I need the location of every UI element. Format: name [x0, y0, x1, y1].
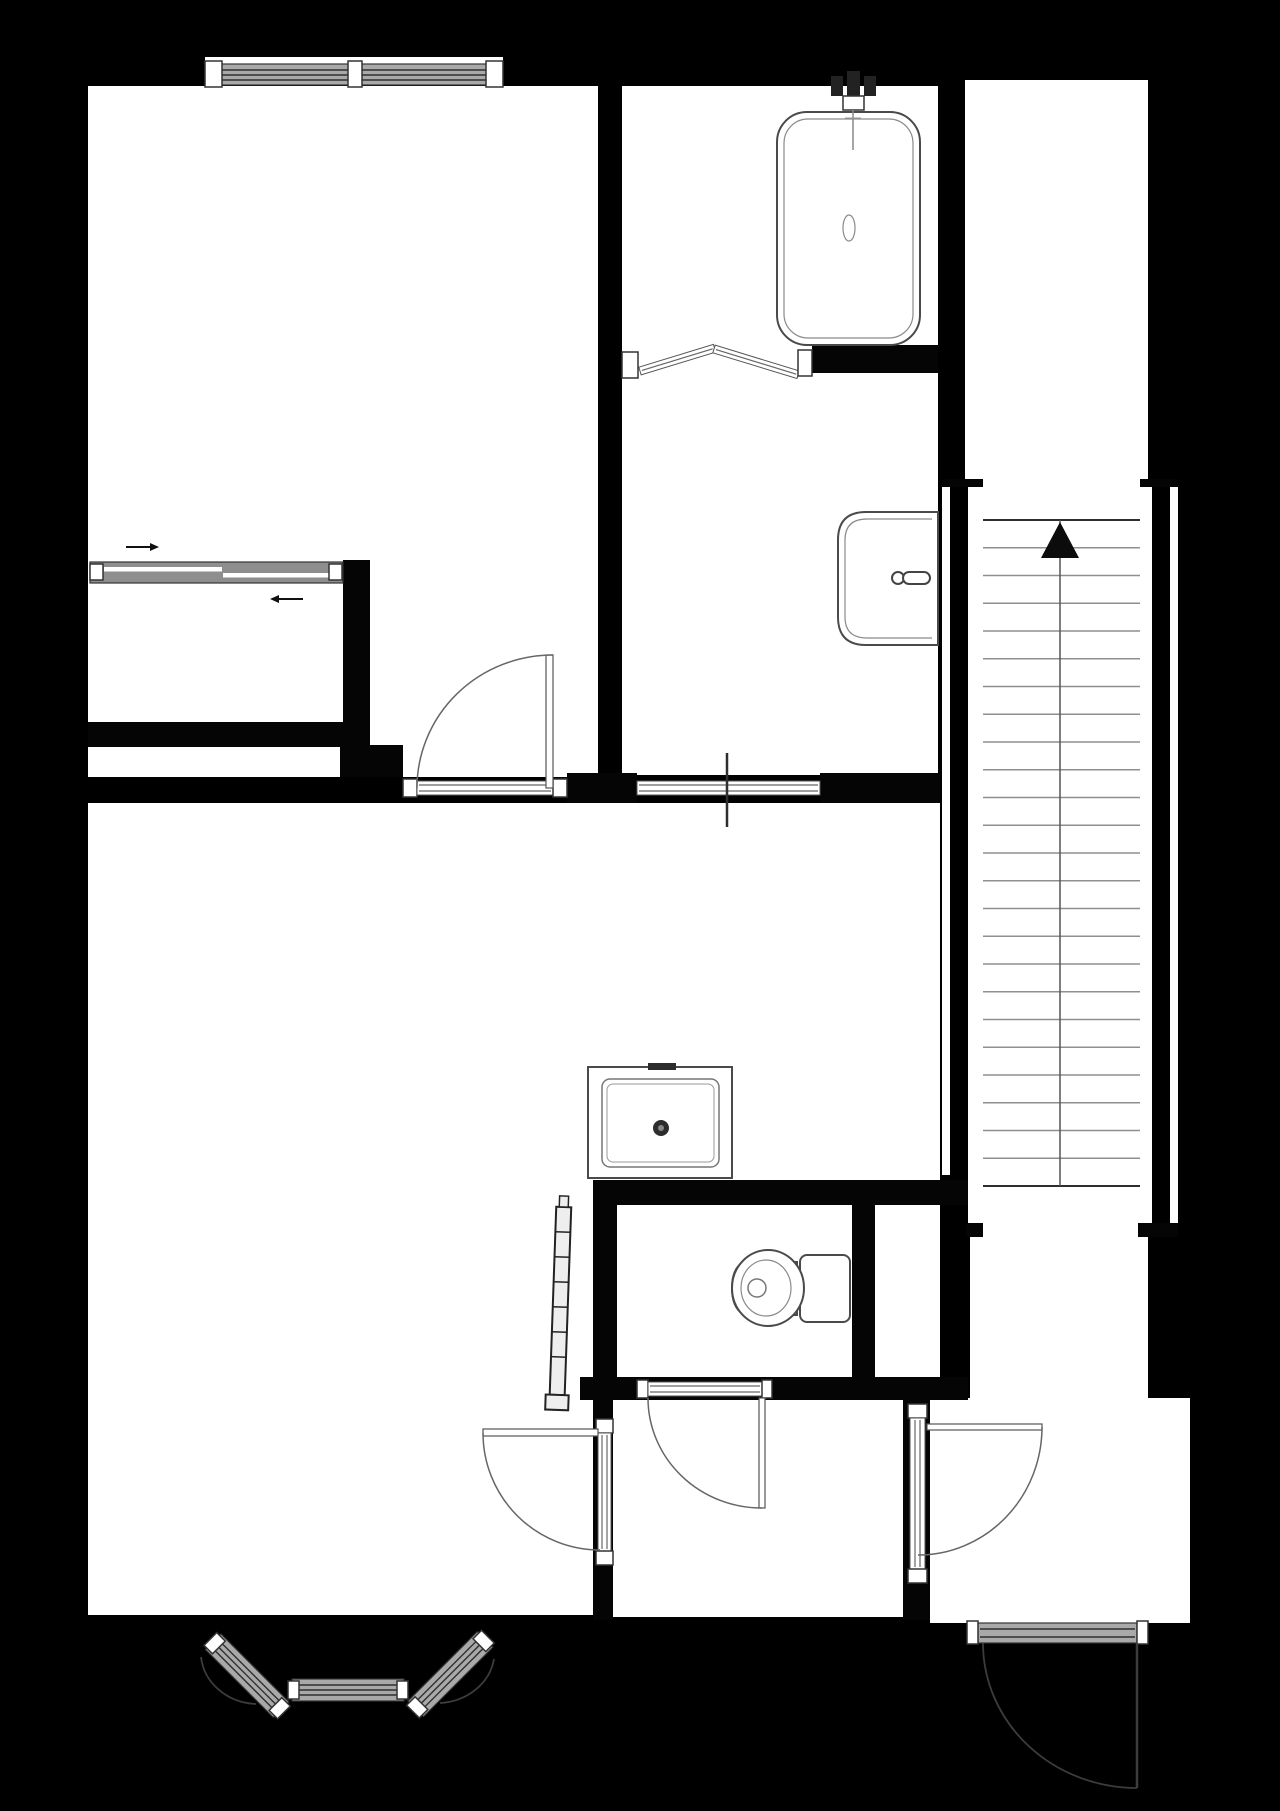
- toilet-room-left-wall: [593, 1205, 617, 1400]
- slider-jamb-right: [329, 564, 342, 580]
- toilet-room-right-wall: [852, 1205, 875, 1377]
- window-jamb-right: [1137, 1621, 1148, 1644]
- shower-tray: [588, 1063, 732, 1178]
- door-leaf: [546, 655, 553, 788]
- door-leaf: [927, 1424, 1042, 1430]
- slider-track: [90, 562, 343, 583]
- window-jamb-right: [486, 61, 503, 87]
- stair-landing-floor: [970, 1187, 1148, 1403]
- door-leaf: [483, 1429, 598, 1436]
- window-band: [978, 1623, 1137, 1643]
- floorplan-canvas: [0, 0, 1280, 1811]
- bath-bottom-wall-left: [567, 773, 637, 803]
- stair-rail-cap-bottom-left: [966, 1223, 983, 1237]
- door-leaf: [759, 1398, 765, 1508]
- stair-hall-floor: [965, 80, 1148, 485]
- stair-rail-inner-right: [1140, 485, 1152, 1237]
- stair-rail-outer-left: [942, 485, 950, 1175]
- bifold-jamb-left: [622, 352, 638, 378]
- toilet-cistern: [800, 1255, 850, 1322]
- stair-rail-inner-left: [968, 485, 983, 1235]
- floorplan-drawing: [0, 0, 1280, 1811]
- bifold-jamb-right: [798, 350, 812, 376]
- bedroom-window: [205, 57, 503, 87]
- bay-pane-center: [288, 1679, 408, 1701]
- window-jamb-left: [967, 1621, 978, 1644]
- slider-leaf-1: [104, 567, 222, 572]
- window-jamb-left: [205, 61, 222, 87]
- window-mullion: [348, 61, 362, 87]
- closet-wall-foot: [340, 745, 403, 777]
- wall-below-bathtub: [812, 345, 938, 373]
- entry-room-floor: [930, 1398, 1190, 1623]
- stair-treads-area: [983, 485, 1140, 1188]
- stair-rail-cap-bottom-right: [1138, 1223, 1178, 1237]
- toilet: [732, 1250, 850, 1326]
- toilet-bowl: [732, 1250, 804, 1326]
- stair-rail-cap-top-left: [942, 479, 983, 487]
- radiator-valve-top: [559, 1196, 568, 1207]
- slider-leaf-2: [223, 573, 333, 578]
- bath-bottom-wall-right: [820, 773, 940, 803]
- slider-jamb-left: [90, 564, 103, 580]
- sink-faucet: [903, 572, 930, 584]
- toilet-room-top-wall: [593, 1180, 968, 1205]
- stair-rail-outer-right: [1170, 485, 1178, 1223]
- tray-wall-tick: [648, 1063, 676, 1070]
- closet-right-wall: [343, 560, 370, 777]
- wall-hung-sink: [838, 512, 938, 645]
- radiator-foot: [545, 1395, 569, 1411]
- entry-window: [967, 1621, 1148, 1644]
- stair-rail-cap-top-right: [1140, 479, 1178, 487]
- closet-bottom-wall: [88, 722, 343, 747]
